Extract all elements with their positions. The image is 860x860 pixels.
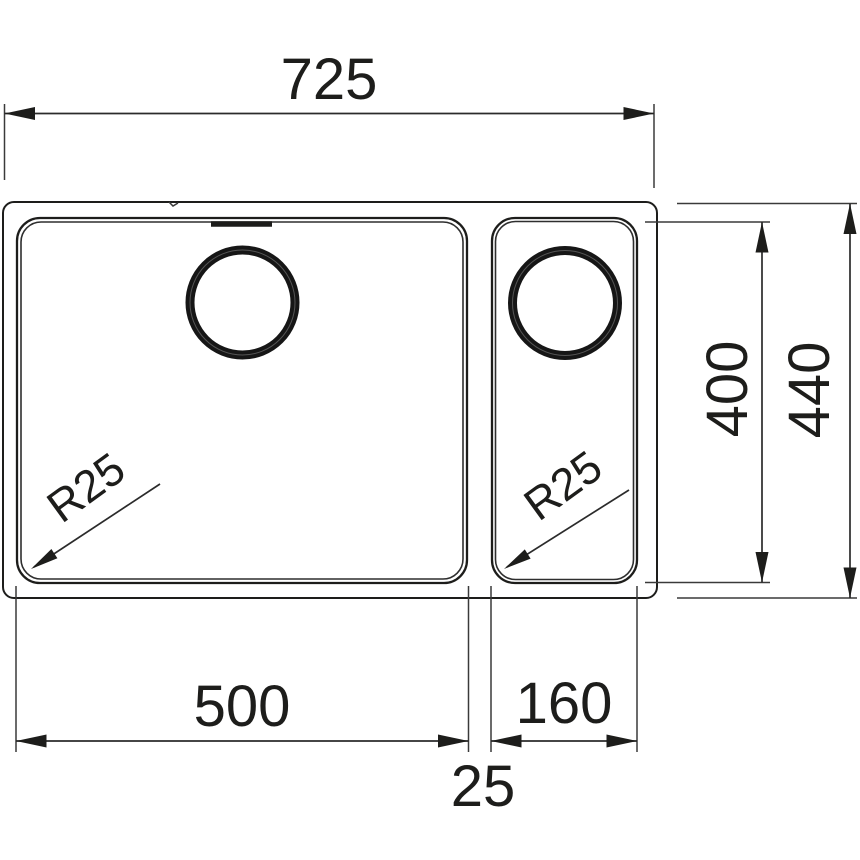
sink-outer-edge — [3, 202, 657, 598]
dimension-label: 25 — [451, 754, 516, 819]
dimension-main-bowl-width: 500 — [16, 586, 469, 752]
dimension-bowl-depth: 400 — [645, 222, 770, 583]
arrowhead-bottom — [844, 568, 857, 599]
arrowhead-top — [844, 204, 857, 235]
drawing-canvas: 725 400 440 500 160 25 — [0, 0, 860, 860]
dimension-label: 725 — [281, 47, 378, 112]
dimension-overall-width: 725 — [5, 47, 655, 188]
dimension-label: 500 — [194, 674, 291, 739]
arrowhead-left — [491, 735, 522, 748]
dimension-label: 440 — [777, 342, 842, 439]
dimension-label: 160 — [516, 671, 613, 736]
arrowhead-right — [607, 735, 638, 748]
sink-outline — [3, 202, 657, 598]
arrowhead-left — [5, 107, 36, 120]
arrowhead-top — [756, 222, 769, 253]
arrowhead-right — [438, 735, 469, 748]
arrowhead-left — [16, 735, 47, 748]
sink-dimension-drawing: 725 400 440 500 160 25 — [0, 0, 860, 860]
dimension-divider-gap: 25 — [451, 754, 516, 819]
arrowhead-bottom — [756, 552, 769, 583]
dimension-label: 400 — [695, 341, 760, 438]
dimension-small-bowl-width: 160 — [491, 586, 637, 752]
arrowhead-right — [624, 107, 655, 120]
